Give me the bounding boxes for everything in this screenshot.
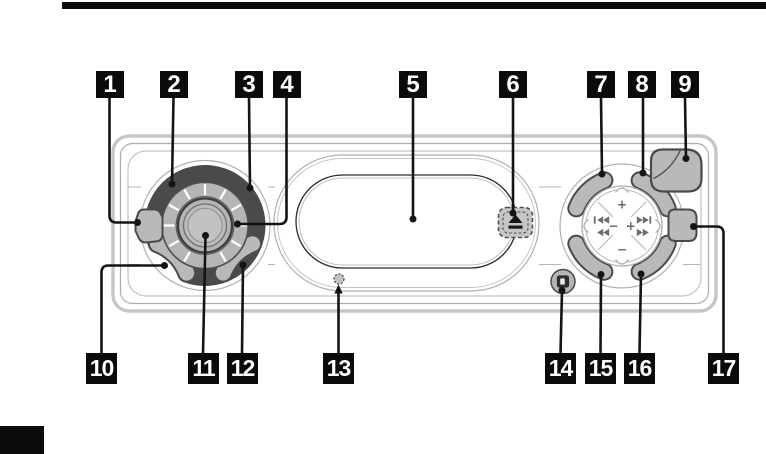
callout-14: 14 xyxy=(545,353,576,384)
dpad-plus-right: + xyxy=(626,219,636,233)
stereo-front-panel-illustration: + − − + xyxy=(0,0,766,454)
callout-7: 7 xyxy=(587,71,615,98)
leader-line-15 xyxy=(601,275,602,353)
callout-2: 2 xyxy=(160,71,188,98)
leader-dot-12 xyxy=(240,262,247,269)
leader-dot-4 xyxy=(234,221,241,228)
callout-3: 3 xyxy=(235,71,263,98)
leader-line-16 xyxy=(640,275,642,354)
dpad-minus-bottom: − xyxy=(617,243,627,257)
callout-12: 12 xyxy=(227,353,258,384)
callout-5: 5 xyxy=(399,71,427,98)
leader-line-12 xyxy=(242,266,243,354)
leader-dot-3 xyxy=(247,185,254,192)
corner-button xyxy=(651,150,702,192)
leader-line-7 xyxy=(601,98,602,174)
callout-8: 8 xyxy=(628,71,656,98)
leader-dot-14 xyxy=(559,287,566,294)
manual-page: + − − + xyxy=(0,0,766,454)
leader-dot-6 xyxy=(510,210,517,217)
callout-15: 15 xyxy=(585,353,616,384)
leader-line-14 xyxy=(561,291,563,353)
leader-dot-1 xyxy=(134,219,141,226)
dpad-plus-top: + xyxy=(617,198,627,212)
leader-dot-9 xyxy=(683,155,690,162)
callout-9: 9 xyxy=(671,71,699,98)
leader-dot-10 xyxy=(161,262,168,269)
leader-dot-15 xyxy=(598,271,605,278)
leader-dot-8 xyxy=(640,170,647,177)
callout-6: 6 xyxy=(499,71,527,98)
leader-dot-16 xyxy=(638,271,645,278)
leader-dot-7 xyxy=(599,171,606,178)
reset-hole xyxy=(334,274,344,284)
callout-17: 17 xyxy=(708,353,739,384)
callout-4: 4 xyxy=(273,71,301,98)
dpad-disc: + − − + xyxy=(582,186,662,266)
leader-dot-5 xyxy=(410,216,417,223)
leader-line-2 xyxy=(172,98,174,184)
leader-line-9 xyxy=(685,98,686,159)
leader-line-3 xyxy=(249,98,250,188)
callout-13: 13 xyxy=(323,353,354,384)
callout-1: 1 xyxy=(96,71,124,98)
leader-dot-17 xyxy=(690,223,697,230)
leader-dot-11 xyxy=(202,232,209,239)
callout-11: 11 xyxy=(188,353,219,384)
dpad-minus-left: − xyxy=(608,219,618,233)
leader-dot-2 xyxy=(169,181,176,188)
callout-16: 16 xyxy=(624,353,655,384)
callout-10: 10 xyxy=(86,353,117,384)
left-side-button xyxy=(136,210,163,243)
